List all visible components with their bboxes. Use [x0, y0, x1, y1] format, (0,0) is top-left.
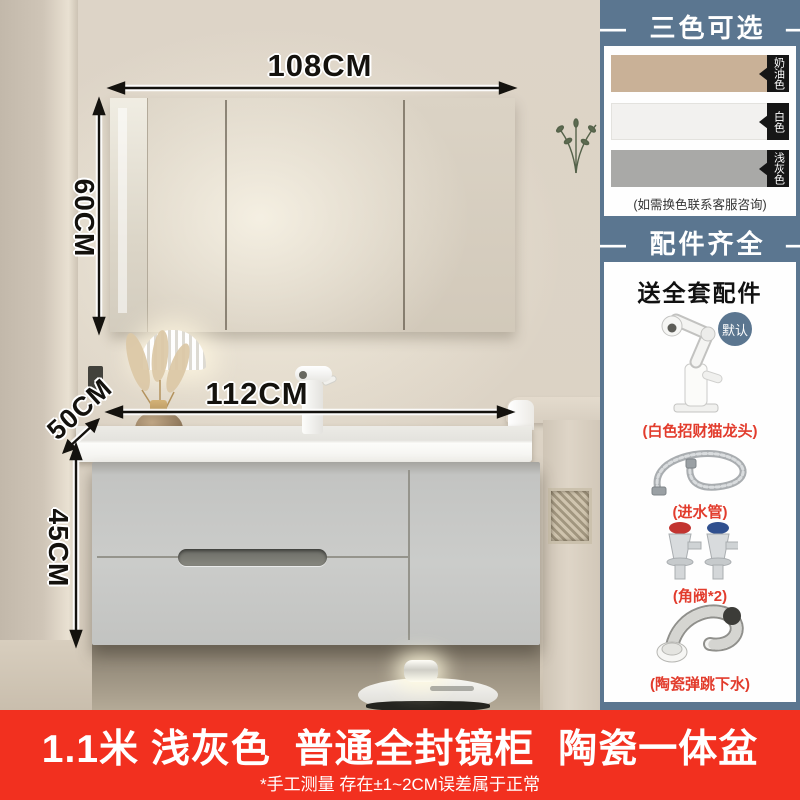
swatch-label-gray: 浅灰色: [767, 150, 789, 187]
measure-disclaimer: *手工测量 存在±1~2CM误差属于正常: [0, 770, 800, 795]
color-options-header: — 三色可选 —: [600, 8, 800, 45]
vanity-cabinet: [92, 462, 540, 645]
mirror-strip: [110, 98, 148, 332]
drain-pipe-icon: [652, 602, 748, 668]
dim-counter-width: 112CM: [192, 376, 322, 412]
robot-vacuum-lidar: [404, 660, 438, 682]
door-seam: [408, 470, 410, 640]
cabinet-door-seam: [225, 100, 227, 330]
mirror-cabinet: [110, 98, 515, 332]
mesh-vent: [548, 488, 592, 544]
faucet-product-icon: [646, 304, 746, 416]
swatch-row-gray: 浅灰色: [611, 150, 789, 187]
inlet-hose-label: (进水管): [604, 501, 796, 522]
dim-mirror-height: 60CM: [68, 168, 100, 268]
accessories-header: — 配件齐全 —: [600, 224, 800, 261]
product-infographic: 108CM 60CM 112CM 50CM 45CM — 三色可选 — 奶油色 …: [0, 0, 800, 800]
accessories-title: 送全套配件: [604, 274, 796, 308]
drain-pipe-label: (陶瓷弹跳下水): [604, 673, 796, 694]
inlet-hose-icon: [644, 445, 756, 497]
faucet-label: (白色招财猫龙头): [604, 420, 796, 441]
angle-valves-icon: [662, 520, 738, 582]
partition-pillar: [543, 420, 600, 710]
color-options-card: 奶油色 白色 浅灰色 (如需换色联系客服咨询): [604, 46, 796, 216]
cabinet-door-seam: [403, 100, 405, 330]
dim-mirror-width: 108CM: [255, 48, 385, 84]
product-banner: 1.1米 浅灰色 普通全封镜柜 陶瓷一体盆 *手工测量 存在±1~2CM误差属于…: [0, 710, 800, 800]
plant-icon: [552, 115, 600, 177]
swatch-row-cream: 奶油色: [611, 55, 789, 92]
recessed-handle: [178, 549, 327, 566]
dim-cabinet-height: 45CM: [42, 498, 74, 598]
left-wall: [0, 0, 78, 710]
swatch-row-white: 白色: [611, 103, 789, 140]
swatch-label-white: 白色: [767, 103, 789, 140]
bathroom-scene: 108CM 60CM 112CM 50CM 45CM: [0, 0, 600, 710]
product-title: 1.1米 浅灰色 普通全封镜柜 陶瓷一体盆: [0, 718, 800, 774]
robot-vacuum-base: [366, 701, 490, 710]
mirror-glare: [118, 108, 127, 313]
swatch-label-cream: 奶油色: [767, 55, 789, 92]
robot-vacuum-buttons: [430, 686, 474, 691]
color-change-note: (如需换色联系客服咨询): [604, 194, 796, 213]
info-side-panel: — 三色可选 — 奶油色 白色 浅灰色 (如需换色联系客服咨询) — 配件齐全 …: [600, 0, 800, 710]
accessories-card: 送全套配件 默认 (白色招财猫龙头) (进水管): [604, 262, 796, 702]
